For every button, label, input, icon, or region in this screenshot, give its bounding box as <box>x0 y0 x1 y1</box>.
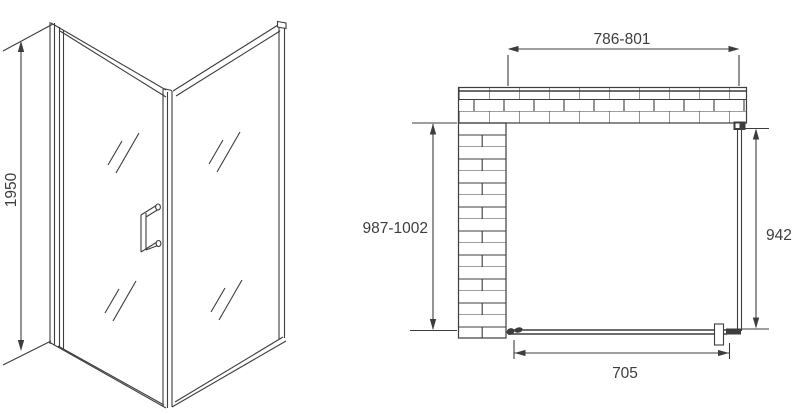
depth-dimension: 987-1002 <box>362 123 457 331</box>
handle-mount-bottom <box>156 241 161 247</box>
arrow-right-icon <box>729 46 740 52</box>
shower-enclosure-diagram: 1950 <box>0 0 800 415</box>
width-dimension: 786-801 <box>508 31 740 86</box>
wall-profile-cap <box>278 22 287 29</box>
extension-line-top <box>3 24 53 51</box>
width-dimension-label: 786-801 <box>594 31 651 48</box>
door-handle <box>141 204 161 252</box>
door-top-view <box>506 324 741 345</box>
arrow-down-icon <box>430 319 436 330</box>
seal-profile <box>715 324 724 345</box>
glass-reflections <box>105 132 242 321</box>
door-dimension: 705 <box>514 340 730 382</box>
side-panel <box>172 22 286 408</box>
technical-drawing-canvas: 1950 <box>0 0 800 415</box>
plan-view: 786-801 987-1002 942 705 <box>362 31 791 382</box>
handle-mount-top <box>156 204 161 210</box>
arrow-left-icon <box>508 46 519 52</box>
height-dimension-label: 1950 <box>3 172 20 207</box>
panel-dimension-label: 942 <box>766 227 792 244</box>
front-view: 1950 <box>3 22 286 409</box>
depth-dimension-label: 987-1002 <box>362 220 428 237</box>
wall-bracket-notch <box>736 124 740 129</box>
corner-post <box>163 89 172 409</box>
arrow-right-icon <box>718 350 729 356</box>
extension-line-bottom <box>3 341 51 365</box>
hinge-clamp <box>514 326 523 333</box>
wall-top <box>459 88 747 124</box>
arrow-up-icon <box>430 124 436 135</box>
height-dimension: 1950 <box>3 24 53 365</box>
side-glass-panel <box>734 122 746 332</box>
arrow-up-icon <box>753 129 759 140</box>
arrow-left-icon <box>515 350 526 356</box>
door-dimension-label: 705 <box>612 365 638 382</box>
wall-left <box>459 123 507 338</box>
arrow-down-icon <box>18 340 24 351</box>
arrow-down-icon <box>753 318 759 329</box>
